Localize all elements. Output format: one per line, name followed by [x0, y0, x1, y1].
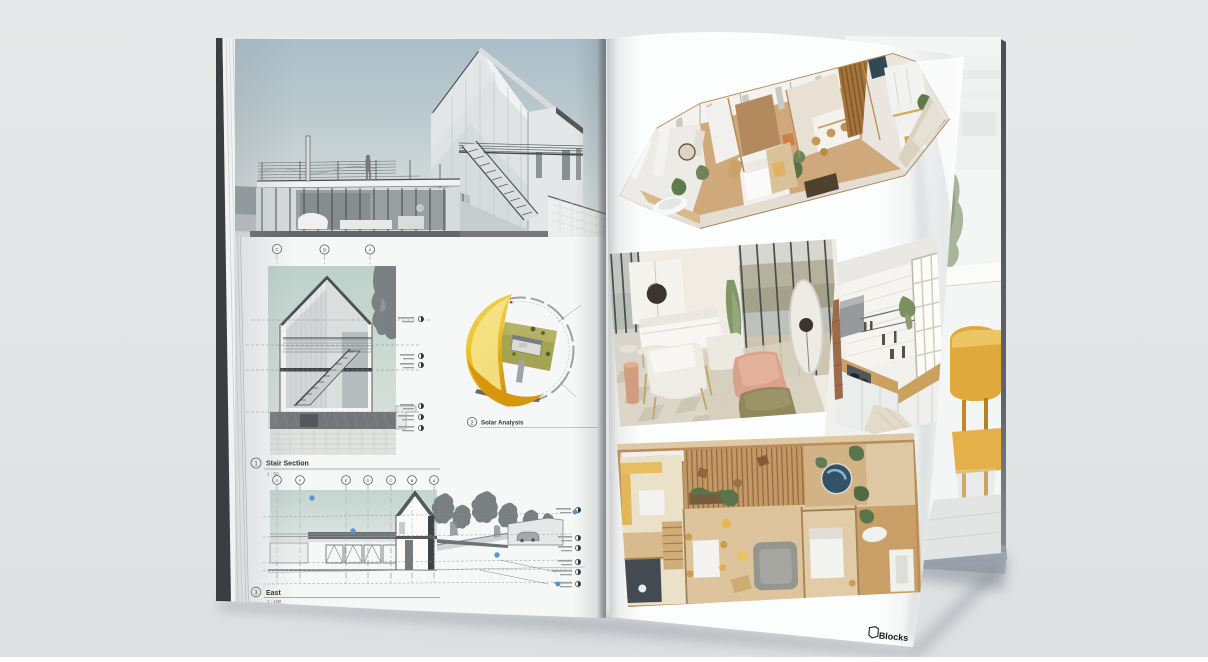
svg-text:B: B	[411, 478, 414, 483]
svg-text:D: D	[367, 478, 370, 483]
svg-text:A: A	[433, 478, 436, 483]
svg-text:B: B	[323, 248, 326, 253]
svg-text:2: 2	[470, 421, 473, 427]
svg-text:A: A	[369, 248, 372, 253]
svg-text:E: E	[345, 478, 348, 483]
svg-text:C: C	[390, 478, 393, 483]
svg-text:Solar Analysis: Solar Analysis	[481, 420, 524, 427]
